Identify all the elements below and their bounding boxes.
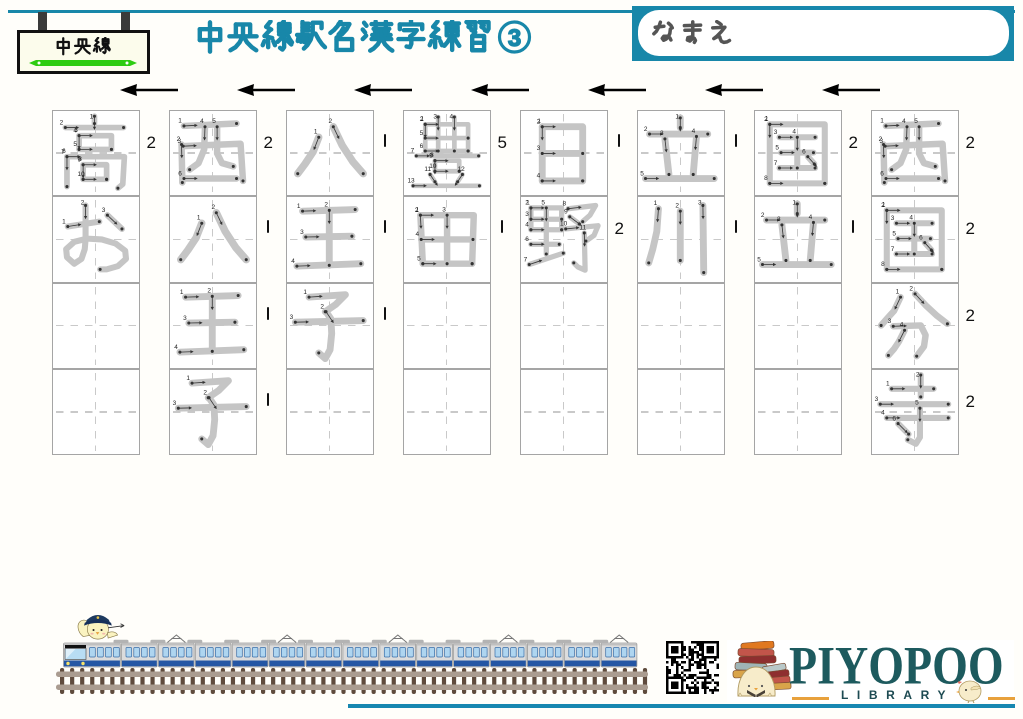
svg-text:3: 3 — [508, 25, 521, 52]
